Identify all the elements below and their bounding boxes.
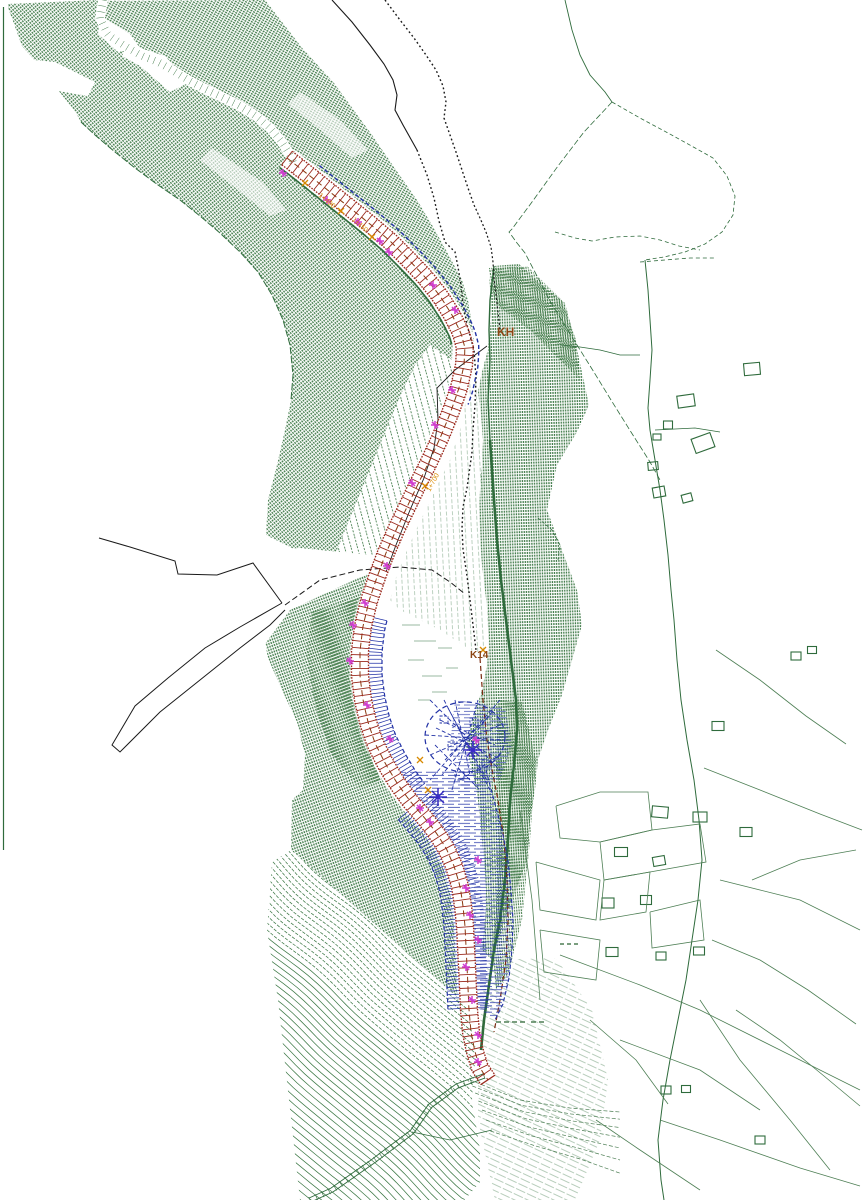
svg-text:K14: K14 (470, 650, 489, 661)
svg-text:KH: KH (497, 325, 514, 339)
